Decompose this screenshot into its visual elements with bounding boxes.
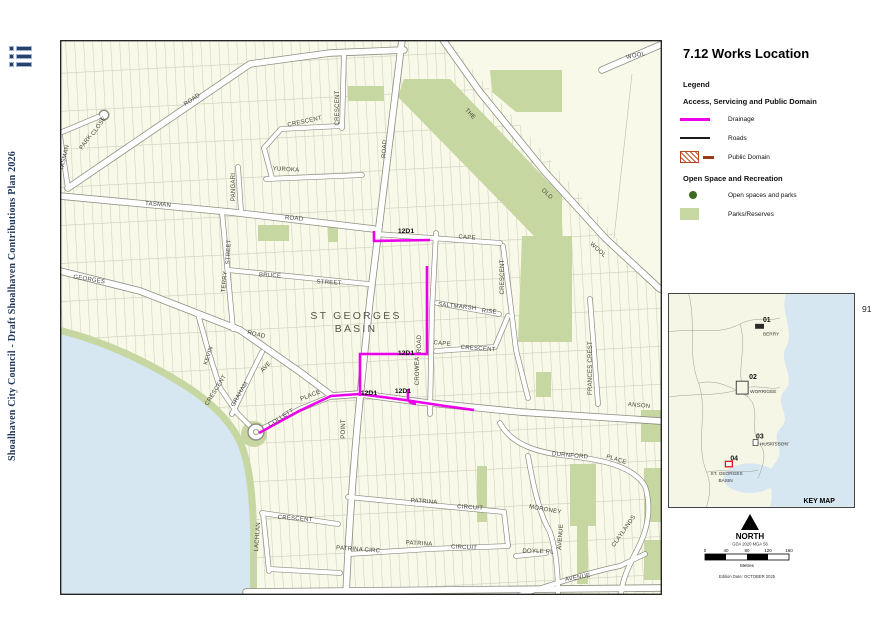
works-id-label: 12D1 — [361, 390, 377, 397]
key-map-name: HUSKISSON — [760, 442, 788, 448]
works-id-label: 12D1 — [398, 228, 414, 235]
legend-item-label: Public Domain — [728, 154, 770, 161]
north-label: NORTH — [736, 532, 765, 541]
public-domain-line-swatch — [703, 156, 714, 159]
street-label: CRESCENT — [335, 90, 341, 125]
list-icon[interactable] — [9, 46, 35, 70]
key-map-name: BASIN — [718, 478, 733, 484]
north-and-scale: NORTH GDA 2020 MGA 56 0 40 80 120 160 Me… — [690, 510, 820, 588]
key-map-name: ST. GEORGES — [711, 471, 743, 477]
legend-item-roads: Roads — [680, 131, 747, 145]
page-title: 7.12 Works Location — [683, 46, 809, 61]
street-label: DOYLE PL — [522, 548, 554, 555]
works-id-label: 12D1 — [398, 350, 414, 357]
key-map-label: KEY MAP — [804, 498, 836, 505]
legend-item-label: Roads — [728, 135, 747, 142]
legend-item-drainage: Drainage — [680, 112, 754, 126]
street-label: CAPE — [458, 234, 476, 241]
street-label: ROAD — [417, 334, 423, 353]
legend-item-public-domain: Public Domain — [680, 150, 770, 164]
works-id-label: 12D1 — [395, 388, 411, 395]
scale-tick: 160 — [785, 548, 793, 553]
key-map-id: 01 — [763, 317, 771, 324]
parks-reserves-swatch — [680, 208, 699, 220]
key-map-name: BERRY — [763, 332, 780, 338]
public-domain-hatch-swatch — [680, 151, 699, 163]
scale-bar — [705, 554, 789, 560]
scale-tick: 120 — [764, 548, 772, 553]
key-map: 01 BERRY 02 WORRIGEE 03 HUSKISSON 04 ST.… — [668, 293, 855, 508]
street-label: BRUCE — [259, 272, 282, 279]
scale-tick: 0 — [704, 548, 707, 553]
page-number: 91 — [862, 304, 871, 314]
list-icon-row — [9, 62, 35, 67]
legend-item-label: Open spaces and parks — [728, 192, 797, 199]
legend-group-access-heading: Access, Servicing and Public Domain — [683, 97, 817, 106]
street-label: PANGARI — [231, 173, 237, 201]
open-space-dot-swatch — [689, 191, 697, 199]
scale-tick: 80 — [744, 548, 750, 553]
edition-date: Edition Date: OCTOBER 2025 — [719, 574, 776, 579]
roads-swatch — [680, 137, 710, 140]
key-map-id: 03 — [756, 434, 764, 441]
document-title-vertical: Shoalhaven City Council - Draft Shoalhav… — [7, 141, 23, 471]
drainage-swatch — [680, 118, 710, 121]
street-label: CROWEA — [415, 357, 421, 386]
street-label: CRESCENT — [500, 259, 506, 294]
legend-item-label: Drainage — [728, 116, 754, 123]
street-label: POINT — [341, 419, 347, 439]
legend-heading: Legend — [683, 80, 710, 89]
legend-item-label: Parks/Reserves — [728, 211, 774, 218]
legend-item-parks-reserves: Parks/Reserves — [680, 207, 774, 221]
scale-tick: 40 — [723, 548, 729, 553]
north-arrow-icon — [741, 514, 759, 530]
works-location-map: TASMAN PARK CLOSE ROAD TASMAN ROAD CRESC… — [60, 40, 662, 595]
key-map-marker-berry — [755, 324, 764, 329]
street-label: FRANCES CREST — [588, 341, 594, 395]
key-map-name: WORRIGEE — [750, 389, 776, 395]
key-map-id: 04 — [730, 455, 738, 462]
key-map-marker-worrigee — [736, 381, 748, 394]
key-map-id: 02 — [749, 374, 757, 381]
scale-unit: Metres — [740, 563, 755, 568]
map-canvas: TASMAN PARK CLOSE ROAD TASMAN ROAD CRESC… — [60, 40, 662, 595]
suburb-label-line2: BASIN — [335, 323, 378, 335]
suburb-label-line1: ST GEORGES — [310, 310, 401, 322]
datum-label: GDA 2020 MGA 56 — [732, 542, 768, 547]
street-label: ROAD — [382, 139, 389, 158]
list-icon-row — [9, 46, 35, 51]
legend-item-open-spaces: Open spaces and parks — [680, 188, 797, 202]
list-icon-row — [9, 54, 35, 59]
legend-group-openspace-heading: Open Space and Recreation — [683, 174, 783, 183]
